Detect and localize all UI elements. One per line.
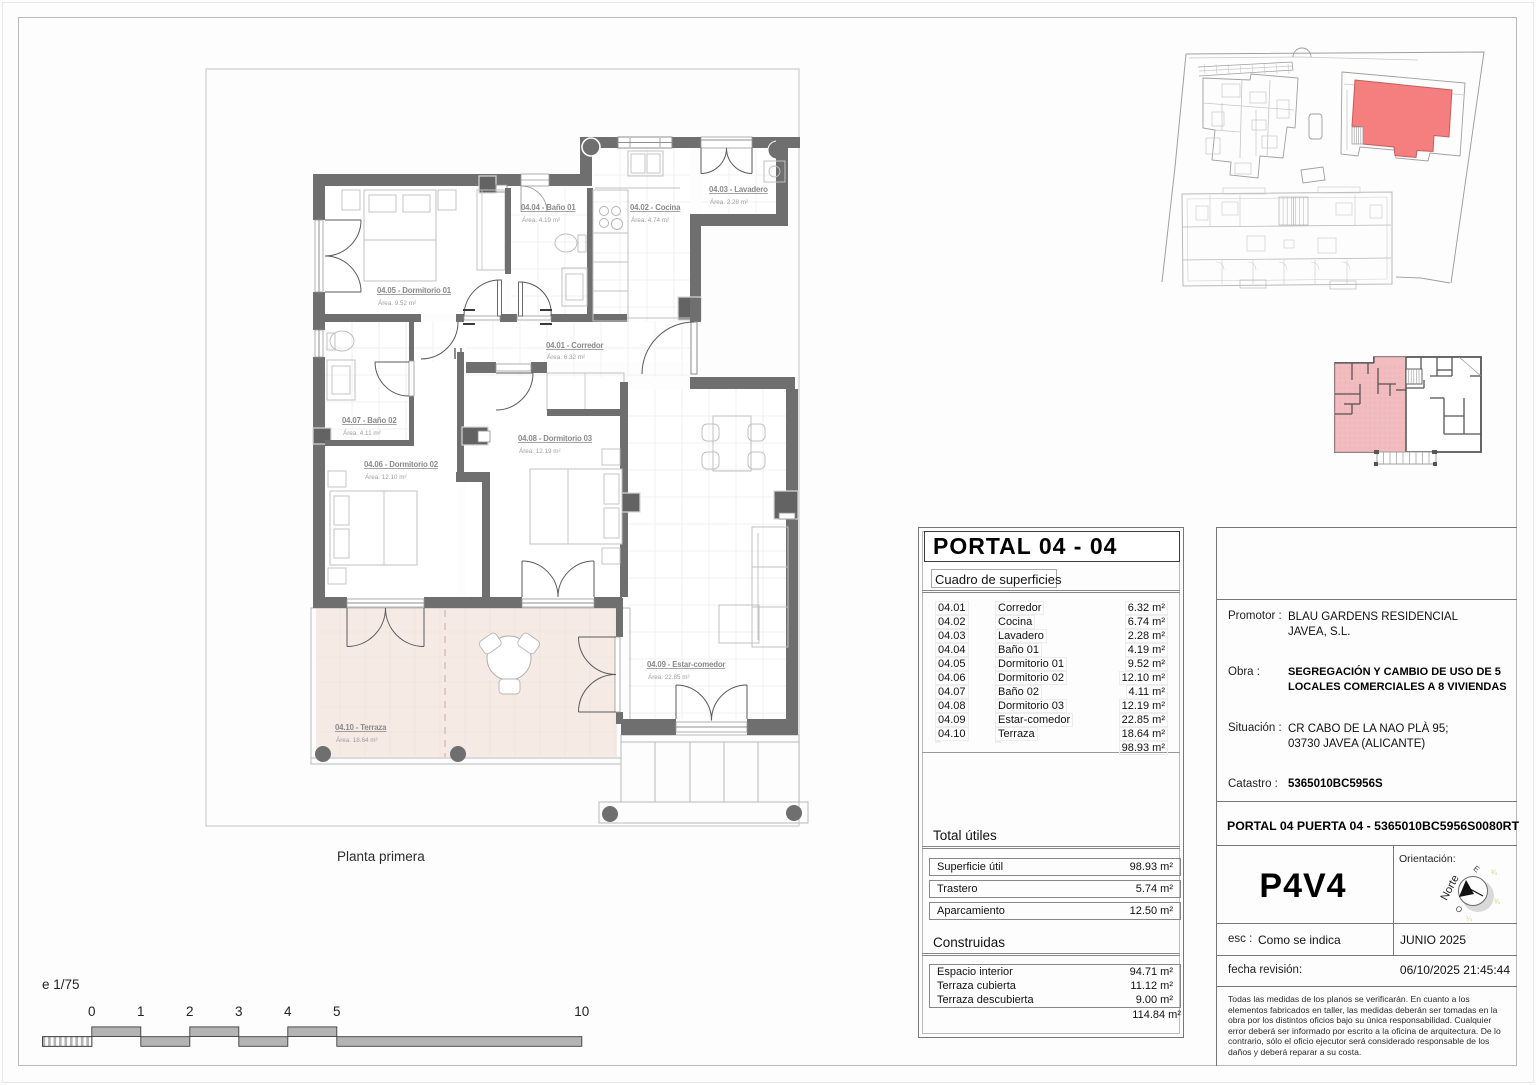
svg-text:04.06 - Dormitorio 02: 04.06 - Dormitorio 02 [364, 460, 439, 469]
svg-text:04.02 - Cocina: 04.02 - Cocina [630, 203, 681, 212]
svg-text:4: 4 [284, 1004, 292, 1019]
svg-text:Área. 6.32 m²: Área. 6.32 m² [547, 352, 585, 361]
svg-text:04.07 - Baño 02: 04.07 - Baño 02 [342, 416, 397, 425]
svg-text:Área. 4.19 m²: Área. 4.19 m² [522, 215, 560, 224]
svg-text:Área. 4.74 m²: Área. 4.74 m² [631, 215, 669, 224]
svg-text:Área. 12.19 m²: Área. 12.19 m² [519, 446, 561, 455]
svg-text:04.01 - Corredor: 04.01 - Corredor [546, 341, 604, 350]
svg-text:Área. 2.28 m²: Área. 2.28 m² [710, 197, 748, 206]
svg-text:04.03 - Lavadero: 04.03 - Lavadero [709, 185, 768, 194]
svg-text:Área. 12.10 m²: Área. 12.10 m² [365, 472, 407, 481]
svg-text:04.09 - Estar-comedor: 04.09 - Estar-comedor [647, 660, 725, 669]
svg-text:Área. 22.85 m²: Área. 22.85 m² [648, 672, 690, 681]
svg-text:04.10 - Terraza: 04.10 - Terraza [335, 723, 387, 732]
svg-text:Área. 9.52 m²: Área. 9.52 m² [378, 298, 416, 307]
svg-text:5: 5 [333, 1004, 341, 1019]
svg-text:2: 2 [186, 1004, 194, 1019]
svg-text:04.08 - Dormitorio 03: 04.08 - Dormitorio 03 [518, 434, 593, 443]
svg-text:Área. 4.11 m²: Área. 4.11 m² [343, 428, 381, 437]
svg-text:10: 10 [574, 1004, 589, 1019]
svg-text:04.04 - Baño 01: 04.04 - Baño 01 [521, 203, 576, 212]
svg-text:0: 0 [88, 1004, 96, 1019]
svg-text:1: 1 [137, 1004, 145, 1019]
svg-text:Área. 18.64 m²: Área. 18.64 m² [336, 735, 378, 744]
svg-text:04.05 - Dormitorio 01: 04.05 - Dormitorio 01 [377, 286, 452, 295]
svg-text:3: 3 [235, 1004, 243, 1019]
